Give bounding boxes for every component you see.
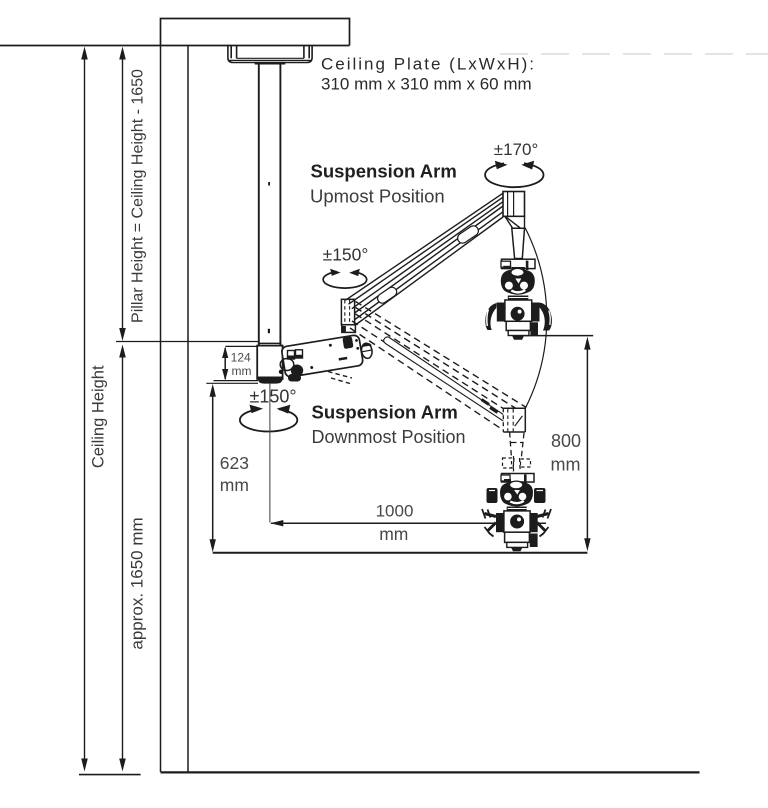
svg-text:124: 124 — [231, 351, 251, 365]
svg-text:±150°: ±150° — [323, 245, 369, 265]
svg-text:mm: mm — [551, 455, 581, 475]
svg-text:±150°: ±150° — [249, 386, 296, 406]
svg-text:Suspension Arm: Suspension Arm — [312, 401, 458, 422]
svg-text:623: 623 — [220, 453, 249, 473]
svg-text:±170°: ±170° — [494, 140, 539, 159]
svg-text:800: 800 — [551, 431, 581, 451]
svg-text:mm: mm — [220, 475, 249, 495]
svg-text:310 mm x 310 mm x 60 mm: 310 mm x 310 mm x 60 mm — [321, 74, 532, 93]
svg-text:approx. 1650 mm: approx. 1650 mm — [128, 517, 147, 649]
svg-text:Pillar Height = Ceiling Height: Pillar Height = Ceiling Height - 1650 — [129, 69, 146, 323]
svg-text:1000: 1000 — [376, 502, 414, 521]
svg-text:Downmost Position: Downmost Position — [312, 427, 466, 447]
svg-text:Ceiling Height: Ceiling Height — [90, 365, 108, 468]
svg-text:mm: mm — [379, 524, 408, 544]
svg-text:Upmost Position: Upmost Position — [310, 186, 445, 207]
svg-text:Suspension Arm: Suspension Arm — [311, 160, 457, 181]
svg-text:mm: mm — [232, 364, 252, 378]
svg-text:Ceiling Plate (LxWxH):: Ceiling Plate (LxWxH): — [321, 54, 536, 73]
